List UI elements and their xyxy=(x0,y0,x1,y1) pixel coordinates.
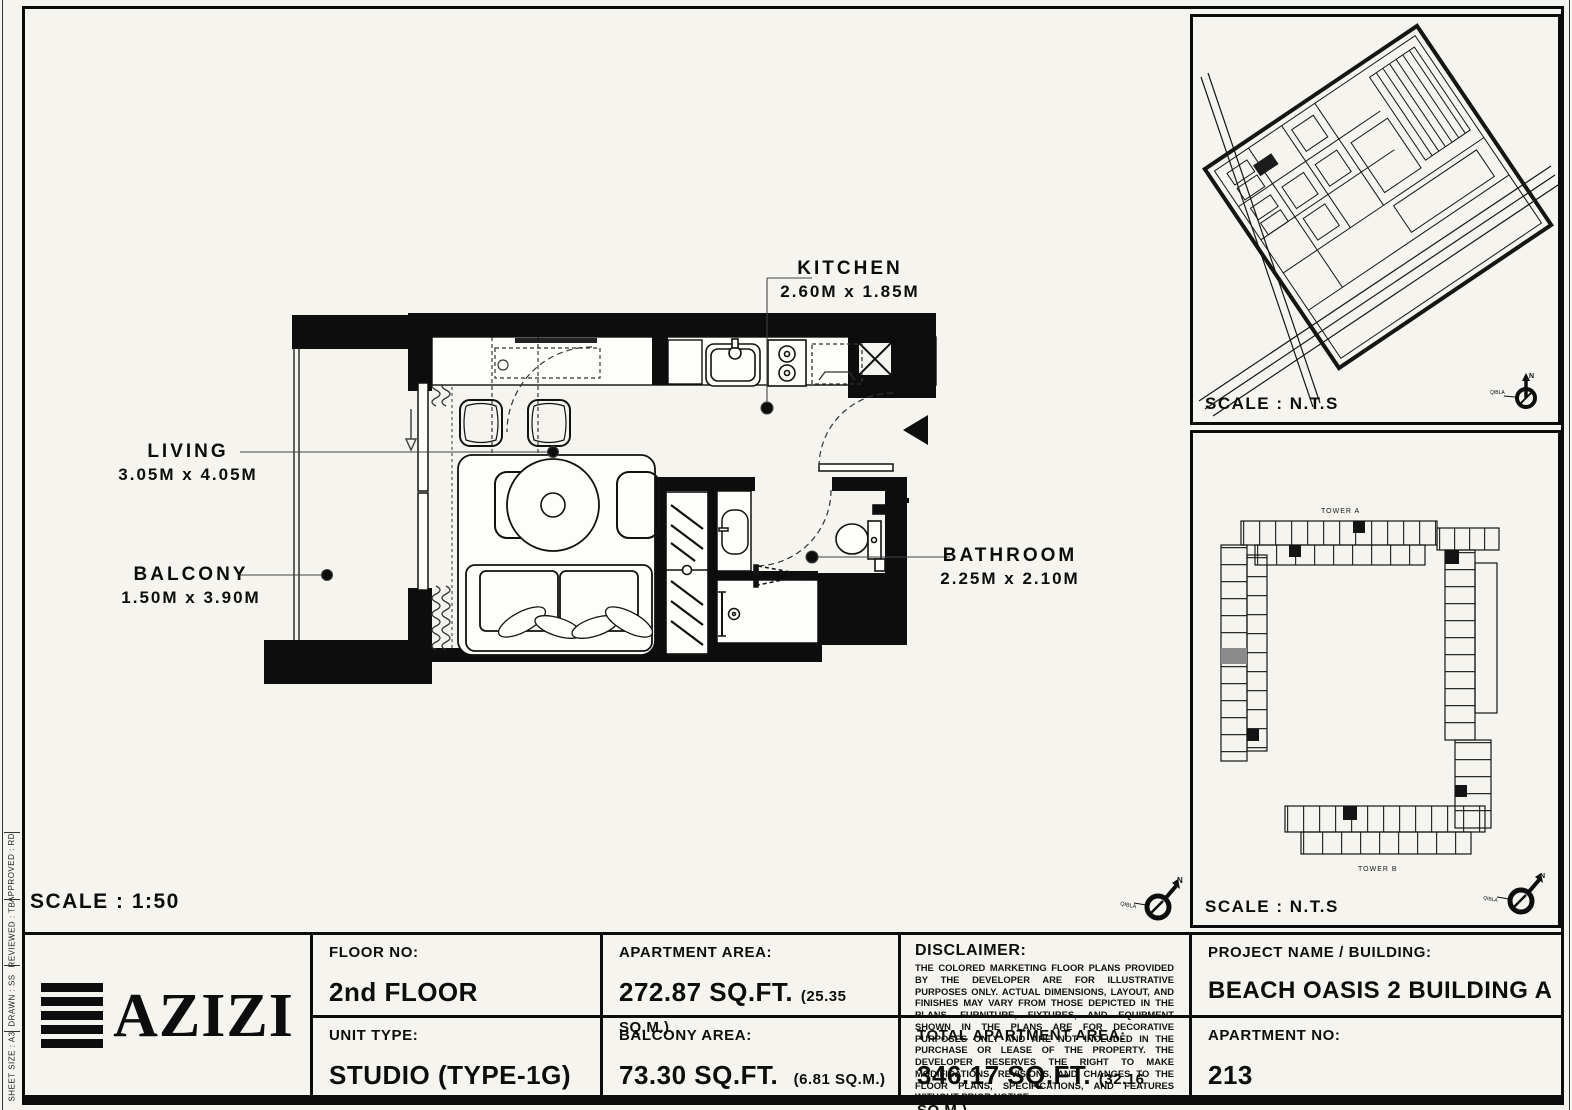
bathroom-label: BATHROOM 2.25M x 2.10M xyxy=(930,545,1090,589)
meta-approved: APPROVED : RD xyxy=(2,834,22,900)
balcony-name: BALCONY xyxy=(115,564,267,586)
core-blocks xyxy=(1247,521,1467,820)
balcony-sliding-door xyxy=(418,383,428,590)
balcony-area-label: BALCONY AREA: xyxy=(619,1027,895,1044)
balcony-area-cell: BALCONY AREA: 73.30 SQ.FT. (6.81 SQ.M.) xyxy=(603,1018,895,1096)
living-dims: 3.05M x 4.05M xyxy=(112,465,264,485)
meta-divider xyxy=(4,965,20,966)
balcony-area-value: 73.30 SQ.FT. xyxy=(619,1060,778,1090)
apartment-area-value: 272.87 SQ.FT. xyxy=(619,977,793,1007)
main-scale-label: SCALE : 1:50 xyxy=(30,890,180,914)
svg-text:QIBLA: QIBLA xyxy=(1490,390,1505,396)
key-plan-panel: TOWER A TOWER B N QIBLA SCALE : N.T.S xyxy=(1190,430,1561,928)
unit-type-value: STUDIO (TYPE-1G) xyxy=(329,1060,600,1091)
living-name: LIVING xyxy=(112,441,264,463)
kitchen-sink xyxy=(706,339,760,386)
meta-reviewed-text: REVIEWED : TB xyxy=(8,901,17,967)
developer-logo: AZIZI xyxy=(25,935,310,1096)
site-map-panel: N QIBLA SCALE : N.T.S xyxy=(1190,14,1561,425)
balcony-railing xyxy=(294,349,299,640)
kitchen-pier-wall xyxy=(652,337,668,385)
bathroom-door-swing xyxy=(755,490,831,566)
north-qibla-compass-icon: N QIBLA xyxy=(1483,873,1545,912)
balcony-dims: 1.50M x 3.90M xyxy=(115,588,267,608)
apartment-no-label: APARTMENT NO: xyxy=(1208,1027,1558,1044)
meta-drawn-text: DRAWN : SS xyxy=(8,974,17,1026)
bath-shower-divider-wall xyxy=(717,571,818,580)
building-key-plan: TOWER A TOWER B N QIBLA xyxy=(1193,433,1558,925)
shaft-x-box xyxy=(858,342,892,376)
svg-text:QIBLA: QIBLA xyxy=(1483,895,1499,904)
total-area-value: 346.17 SQ.FT. xyxy=(917,1060,1091,1090)
sheet-meta-strip: APPROVED : RD REVIEWED : TB DRAWN : SS S… xyxy=(2,0,22,1110)
entry-door xyxy=(819,393,893,471)
unit-type-cell: UNIT TYPE: STUDIO (TYPE-1G) xyxy=(313,1018,600,1096)
apartment-area-cell: APARTMENT AREA: 272.87 SQ.FT. (25.35 SQ.… xyxy=(603,935,895,1015)
bathroom-dims: 2.25M x 2.10M xyxy=(930,569,1090,589)
project-name-cell: PROJECT NAME / BUILDING: BEACH OASIS 2 B… xyxy=(1192,935,1558,1015)
site-map-scale-label: SCALE : N.T.S xyxy=(1205,394,1339,414)
vanity-sink xyxy=(717,491,751,571)
meta-reviewed: REVIEWED : TB xyxy=(2,901,22,967)
kitchen-label: KITCHEN 2.60M x 1.85M xyxy=(775,258,925,302)
project-name-value: BEACH OASIS 2 BUILDING A xyxy=(1208,977,1558,1005)
highlighted-unit-marker xyxy=(1221,648,1247,664)
apartment-area-label: APARTMENT AREA: xyxy=(619,944,895,961)
azizi-logo-text: AZIZI xyxy=(113,985,294,1047)
balcony-area-metric: (6.81 SQ.M.) xyxy=(794,1071,886,1088)
total-area-label: TOTAL APARTMENT AREA: xyxy=(917,1027,1186,1044)
svg-text:N: N xyxy=(1177,876,1183,885)
entry-direction-marker-icon xyxy=(903,415,928,445)
disclaimer-cell: DISCLAIMER: THE COLORED MARKETING FLOOR … xyxy=(901,935,1186,1015)
tv-symbol xyxy=(515,338,597,343)
title-block: AZIZI FLOOR NO: 2nd FLOOR UNIT TYPE: STU… xyxy=(25,932,1561,1096)
kitchen-dims: 2.60M x 1.85M xyxy=(775,282,925,302)
svg-text:N: N xyxy=(1529,373,1534,380)
bathroom-name: BATHROOM xyxy=(930,545,1090,567)
meta-drawn: DRAWN : SS xyxy=(2,967,22,1033)
apartment-no-value: 213 xyxy=(1208,1060,1558,1091)
north-qibla-compass-icon: N QIBLA xyxy=(1490,373,1535,407)
key-plan-scale-label: SCALE : N.T.S xyxy=(1205,897,1339,917)
north-qibla-compass-icon: N QIBLA xyxy=(1120,876,1183,918)
tower-a-label: TOWER A xyxy=(1321,508,1360,515)
kitchen-name: KITCHEN xyxy=(775,258,925,280)
project-name-label: PROJECT NAME / BUILDING: xyxy=(1208,944,1558,961)
wardrobe-closet xyxy=(666,492,708,654)
svg-text:N: N xyxy=(1540,873,1545,880)
azizi-logo-bars-icon xyxy=(41,983,103,1048)
total-area-cell: TOTAL APARTMENT AREA: 346.17 SQ.FT. (32.… xyxy=(901,1018,1186,1096)
apartment-no-cell: APARTMENT NO: 213 xyxy=(1192,1018,1558,1096)
living-label: LIVING 3.05M x 4.05M xyxy=(112,441,264,485)
curtain-symbols xyxy=(432,342,452,650)
meta-divider xyxy=(4,899,20,900)
sofa xyxy=(466,565,657,651)
floor-no-value: 2nd FLOOR xyxy=(329,977,600,1008)
svg-text:QIBLA: QIBLA xyxy=(1120,901,1137,910)
tower-b-label: TOWER B xyxy=(1358,866,1398,873)
disclaimer-label: DISCLAIMER: xyxy=(915,942,1174,960)
unit-type-label: UNIT TYPE: xyxy=(329,1027,600,1044)
sheet-outer-border-right xyxy=(1569,0,1570,1110)
toilet xyxy=(836,505,885,571)
meta-sheet-size: SHEET SIZE : A3 xyxy=(2,1033,22,1099)
floor-plan-sheet: APPROVED : RD REVIEWED : TB DRAWN : SS S… xyxy=(0,0,1572,1110)
slide-direction-arrow-icon xyxy=(406,409,416,450)
site-location-map: N QIBLA xyxy=(1193,17,1558,422)
meta-sheet-size-text: SHEET SIZE : A3 xyxy=(8,1031,17,1101)
balcony-label: BALCONY 1.50M x 3.90M xyxy=(115,564,267,608)
meta-approved-text: APPROVED : RD xyxy=(8,832,17,901)
floor-no-cell: FLOOR NO: 2nd FLOOR xyxy=(313,935,600,1015)
stove-hob xyxy=(768,340,806,386)
floor-no-label: FLOOR NO: xyxy=(329,944,600,961)
